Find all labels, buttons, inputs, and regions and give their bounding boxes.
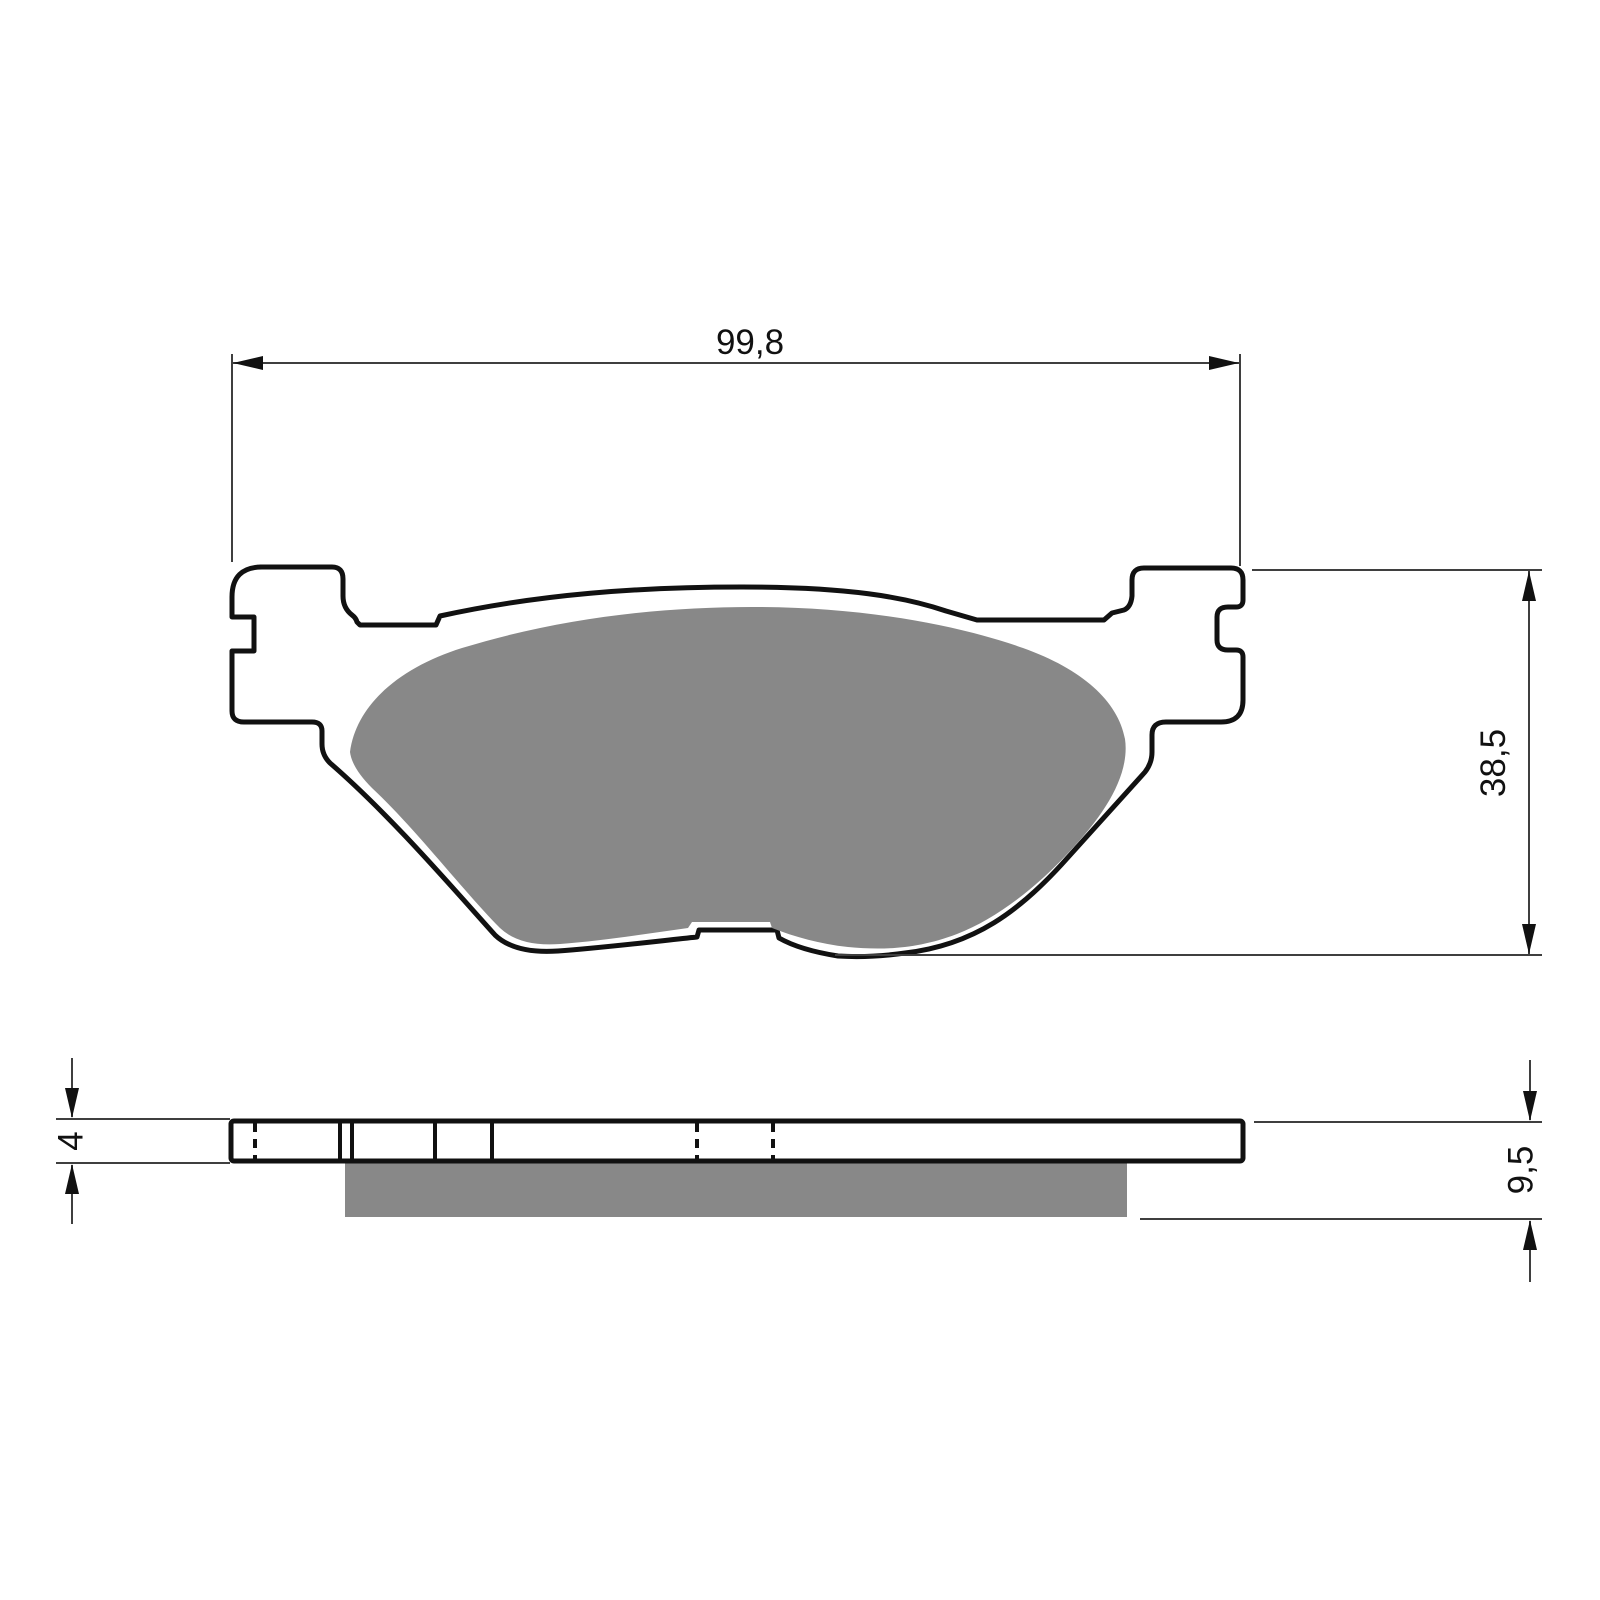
- brake-pad-drawing: 99,8 38,5 4: [0, 0, 1600, 1600]
- width-dimension: 99,8: [232, 323, 1240, 566]
- total-thickness-label: 9,5: [1502, 1146, 1541, 1195]
- side-friction-layer: [345, 1159, 1127, 1217]
- total-thickness-dimension: 9,5: [1140, 1060, 1542, 1282]
- dimension-arrow-down: [1523, 1091, 1537, 1121]
- dimension-arrow-right: [1209, 356, 1239, 370]
- dimension-arrow-up: [1522, 571, 1536, 601]
- width-dimension-label: 99,8: [716, 323, 784, 362]
- technical-drawing-canvas: 99,8 38,5 4: [0, 0, 1600, 1600]
- dimension-arrow-up: [1523, 1220, 1537, 1250]
- dimension-arrow-left: [233, 356, 263, 370]
- side-view: [231, 1121, 1243, 1217]
- backplate-thickness-label: 4: [52, 1131, 91, 1150]
- side-backplate: [231, 1121, 1243, 1161]
- dimension-arrow-down: [1522, 924, 1536, 954]
- dimension-arrow-up: [65, 1164, 79, 1194]
- dimension-arrow-down: [65, 1088, 79, 1118]
- height-dimension-label: 38,5: [1474, 729, 1513, 797]
- backplate-thickness-dimension: 4: [52, 1058, 231, 1224]
- top-view: [232, 567, 1243, 957]
